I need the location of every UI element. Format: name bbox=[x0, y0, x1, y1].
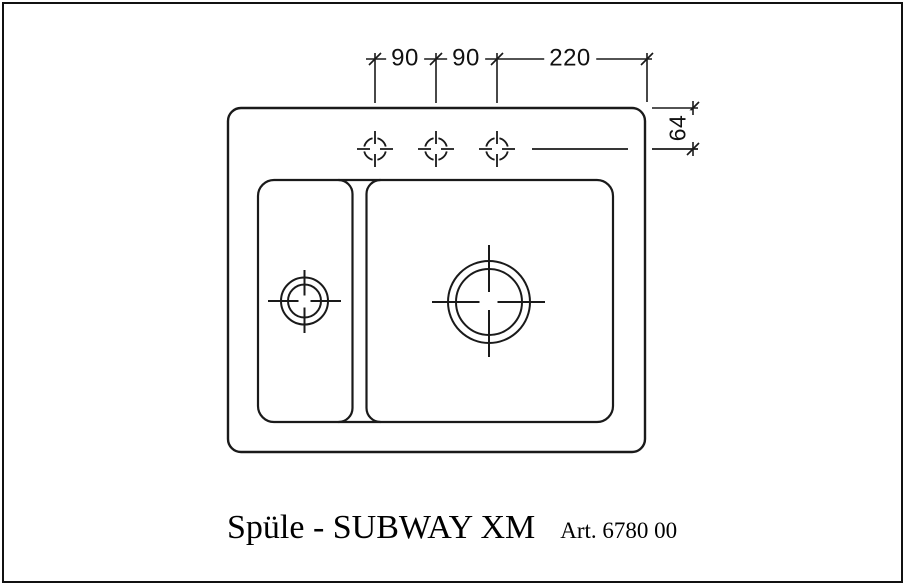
product-title: Spüle - SUBWAY XM bbox=[227, 509, 535, 547]
tap-hole-symbol bbox=[357, 131, 393, 167]
drain-symbol-small bbox=[268, 270, 341, 333]
spec-sheet-page: 90 90 220 64 Spüle - SUBWAY XM Art. 6780… bbox=[0, 0, 905, 585]
article-number: Art. 6780 00 bbox=[560, 518, 677, 544]
basin-divider bbox=[339, 180, 381, 422]
dim-label-tap-spacing-3: 220 bbox=[544, 44, 596, 72]
tap-hole-symbol bbox=[479, 131, 515, 167]
dim-label-tap-spacing-2: 90 bbox=[447, 44, 485, 72]
sink-technical-drawing bbox=[0, 0, 905, 585]
dim-label-rim-to-tap-center: 64 bbox=[665, 111, 692, 146]
title-block: Spüle - SUBWAY XM Art. 6780 00 bbox=[227, 509, 677, 547]
tap-hole-symbol bbox=[418, 131, 454, 167]
drain-symbol-large bbox=[432, 245, 545, 357]
dim-label-tap-spacing-1: 90 bbox=[386, 44, 424, 72]
